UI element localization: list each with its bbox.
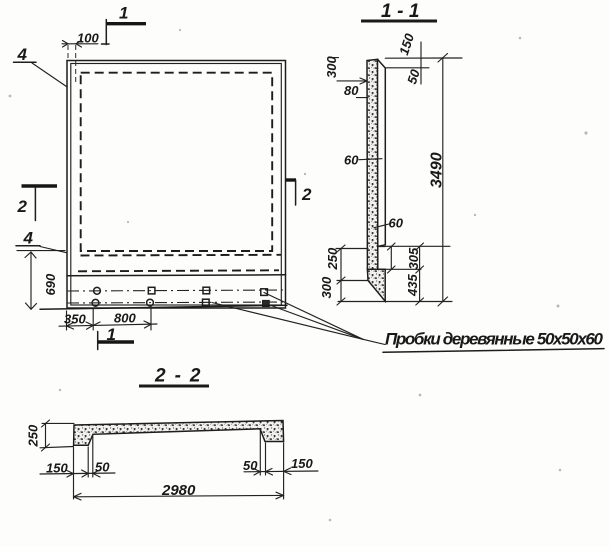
svg-text:300: 300 [319, 276, 334, 298]
svg-text:2: 2 [17, 197, 28, 216]
svg-text:4: 4 [23, 229, 34, 248]
svg-text:60: 60 [389, 216, 404, 231]
svg-text:80: 80 [344, 83, 359, 98]
svg-text:300: 300 [324, 56, 339, 78]
svg-text:690: 690 [43, 273, 58, 295]
svg-text:50: 50 [95, 460, 110, 475]
svg-text:305: 305 [406, 247, 421, 269]
svg-text:2: 2 [301, 185, 312, 204]
svg-text:1: 1 [119, 4, 128, 23]
svg-text:50: 50 [243, 458, 258, 473]
svg-text:350: 350 [64, 312, 86, 327]
svg-text:1-1: 1-1 [381, 1, 425, 22]
svg-text:150: 150 [291, 456, 313, 471]
svg-text:1: 1 [107, 325, 116, 344]
svg-text:2-2: 2-2 [154, 366, 209, 387]
svg-text:250: 250 [325, 247, 340, 270]
svg-text:Пробки деревянные 50x50x60: Пробки деревянные 50x50x60 [385, 330, 604, 349]
svg-text:3490: 3490 [429, 152, 446, 188]
svg-text:250: 250 [26, 424, 41, 447]
svg-text:150: 150 [46, 461, 68, 476]
svg-text:800: 800 [114, 311, 136, 326]
svg-text:435: 435 [405, 274, 420, 297]
svg-text:2980: 2980 [161, 482, 196, 499]
svg-text:4: 4 [17, 45, 28, 64]
svg-text:60: 60 [344, 153, 359, 168]
